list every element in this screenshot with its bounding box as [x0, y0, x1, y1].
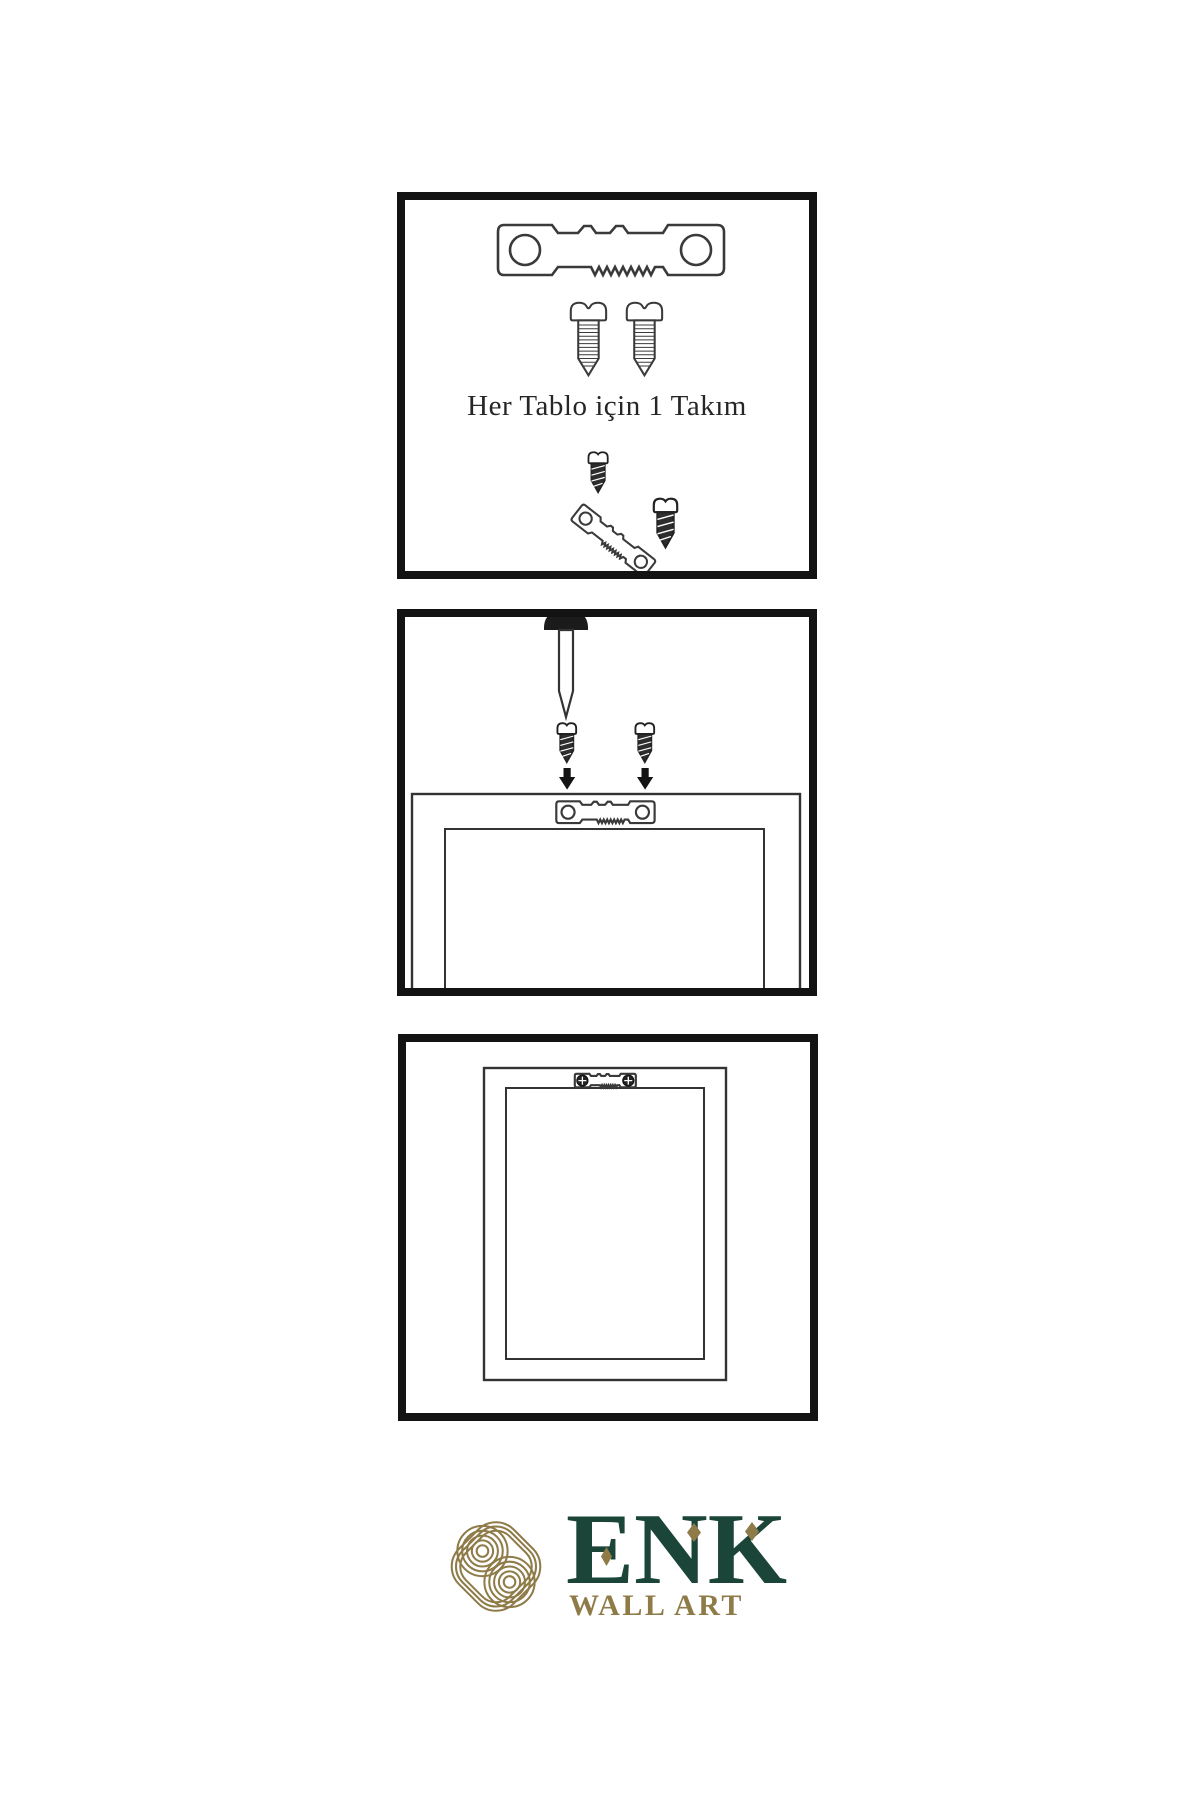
sawtooth-hanger-icon [556, 801, 654, 823]
hung-frame-illustration [406, 1042, 810, 1413]
knot-logo-icon [438, 1496, 554, 1638]
tilted-hanger-icon [571, 504, 657, 571]
mounted-screw-head-icon [623, 1075, 634, 1086]
dark-screw-icon [654, 499, 677, 548]
brand-subtitle: WALL ART [569, 1591, 744, 1621]
dark-screw-icon [635, 723, 654, 762]
brand-name: ENK [566, 1499, 787, 1601]
instruction-panel-wall-mounting [397, 609, 817, 996]
kit-caption: Her Tablo için 1 Takım [405, 390, 809, 423]
screw-icon [571, 303, 606, 376]
screw-icon [627, 303, 662, 376]
down-arrow-icon [637, 768, 653, 790]
hardware-kit-illustration [405, 200, 809, 571]
sawtooth-hanger-icon [498, 225, 724, 275]
down-arrow-icon [559, 768, 575, 790]
instruction-panel-hung-frame [398, 1034, 818, 1421]
wall-mounting-illustration [405, 617, 809, 988]
dark-screw-icon [588, 452, 607, 492]
mounted-screw-head-icon [577, 1075, 588, 1086]
instruction-panel-hardware-kit: Her Tablo için 1 Takım [397, 192, 817, 579]
product-instruction-sheet: Her Tablo için 1 Takım [0, 0, 1200, 1800]
frame-front-icon [484, 1068, 726, 1380]
dark-screw-icon [557, 723, 576, 762]
nail-icon [544, 617, 588, 717]
